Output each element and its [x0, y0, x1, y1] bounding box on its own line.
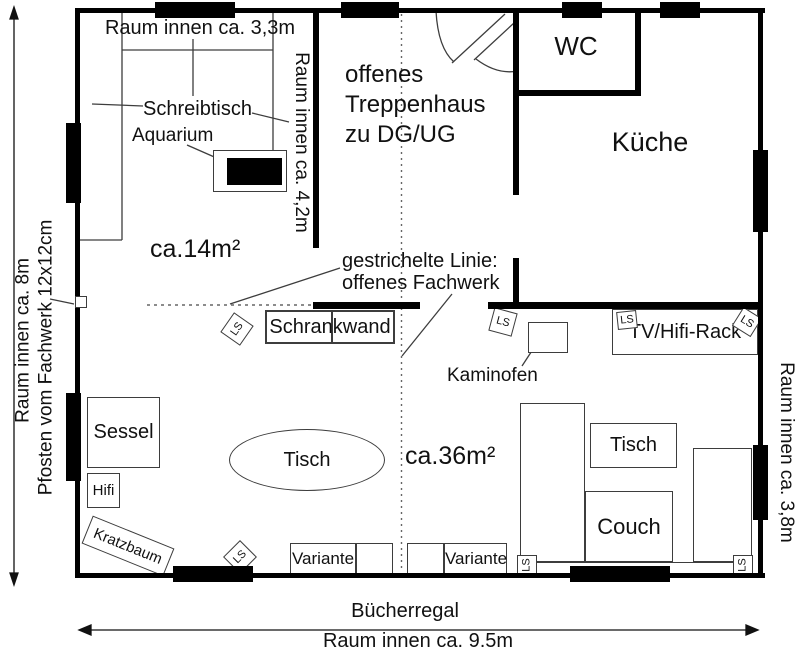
post-left-1	[66, 123, 81, 203]
bookshelf-label: Bücherregal	[330, 600, 480, 622]
left-dim-arrowhead-bottom	[10, 573, 18, 585]
hifi-label: Hifi	[93, 482, 115, 499]
round-table-ellipse: Tisch	[229, 429, 385, 491]
wall-staircase-right	[513, 8, 519, 195]
wall-outer-left	[75, 8, 80, 578]
cabinet-label: Schrankwand	[269, 316, 390, 339]
variant-box-right: Variante	[407, 543, 507, 575]
floor-plan: Schrankwand TV/Hifi-Rack Sessel Hifi Kra…	[0, 0, 800, 647]
desk-leader-right	[252, 113, 289, 122]
variant-left-divider	[355, 544, 357, 574]
wall-wc-right	[635, 8, 641, 96]
wall-mid-right-segment	[488, 302, 762, 309]
speaker-label: LS	[738, 313, 756, 330]
post-right-2	[753, 445, 768, 520]
couch-table-label: Tisch	[610, 434, 657, 457]
area-label-right: ca.36m²	[405, 443, 505, 471]
bottom-dim-arrowhead-left	[79, 625, 91, 635]
post-top-2	[341, 2, 399, 18]
desk-label: Schreibtisch	[143, 98, 252, 120]
post-right-1	[753, 150, 768, 232]
left-dim-arrowhead-top	[10, 7, 18, 19]
dim-label-top-left: Raum innen ca. 3,3m	[100, 17, 300, 39]
staircase-label: offenes Treppenhaus zu DG/UG	[345, 60, 486, 150]
wall-mid-left-segment	[313, 302, 420, 309]
speaker-box-rack-left: LS	[616, 310, 638, 330]
stair-diagonal-2	[474, 23, 514, 60]
cabinet-box: Schrankwand	[265, 310, 395, 344]
speaker-label: LS	[620, 313, 635, 326]
speaker-label: LS	[521, 558, 533, 571]
wall-staircase-left	[313, 8, 319, 248]
aquarium-label: Aquarium	[132, 126, 213, 147]
variant-left-label: Variante	[291, 549, 355, 569]
wall-stub-kitchen	[513, 258, 519, 308]
sideboard-left-rect	[520, 403, 585, 562]
kitchen-label: Küche	[590, 128, 710, 158]
wc-label: WC	[546, 32, 606, 61]
couch-label: Couch	[597, 514, 661, 540]
variant-box-left: Variante	[290, 543, 393, 575]
area-label-left: ca.14m²	[150, 236, 260, 264]
bottom-dim-arrowhead-right	[746, 625, 758, 635]
dim-label-inner-height: Raum innen ca. 4,2m	[290, 45, 311, 240]
speaker-box-shelf-right: LS	[733, 555, 753, 575]
round-table-label: Tisch	[283, 449, 330, 472]
dim-label-right-height: Raum innen ca. 3,8m	[775, 340, 796, 565]
wall-wc-bottom	[513, 90, 641, 96]
desk-leader-left	[92, 104, 143, 106]
stove-label: Kaminofen	[447, 366, 538, 387]
stove-box	[528, 322, 568, 353]
post-left-2	[66, 393, 81, 481]
armchair-label: Sessel	[93, 421, 153, 444]
couch-box: Couch	[585, 491, 673, 562]
armchair-box: Sessel	[87, 397, 160, 468]
speaker-label: LS	[495, 314, 511, 329]
post-note-label: Pfosten vom Fachwerk 12x12cm	[37, 187, 58, 527]
dim-label-bottom: Raum innen ca. 9,5m	[318, 630, 518, 647]
dashed-note-leader-1	[230, 268, 340, 304]
post-top-1	[155, 2, 235, 18]
couch-table-box: Tisch	[590, 423, 677, 468]
post-bottom-1	[173, 566, 253, 582]
post-sample-square	[75, 296, 87, 308]
sideboard-right-rect	[693, 448, 752, 562]
aquarium-rect	[227, 158, 282, 185]
dim-label-left-height: Raum innen ca. 8m	[14, 240, 35, 440]
dashed-note-label: gestrichelte Linie: offenes Fachwerk	[342, 250, 500, 294]
post-top-4	[660, 2, 700, 18]
speaker-label: LS	[228, 320, 246, 338]
hifi-box: Hifi	[87, 473, 120, 508]
stair-arc-left	[436, 11, 454, 62]
post-bottom-2	[570, 566, 670, 582]
tv-rack-label: TV/Hifi-Rack	[629, 321, 741, 344]
speaker-box-shelf-left: LS	[517, 555, 537, 575]
variant-right-label: Variante	[444, 549, 508, 569]
speaker-label: LS	[737, 558, 749, 571]
post-top-3	[562, 2, 602, 18]
speaker-label: LS	[231, 548, 249, 566]
